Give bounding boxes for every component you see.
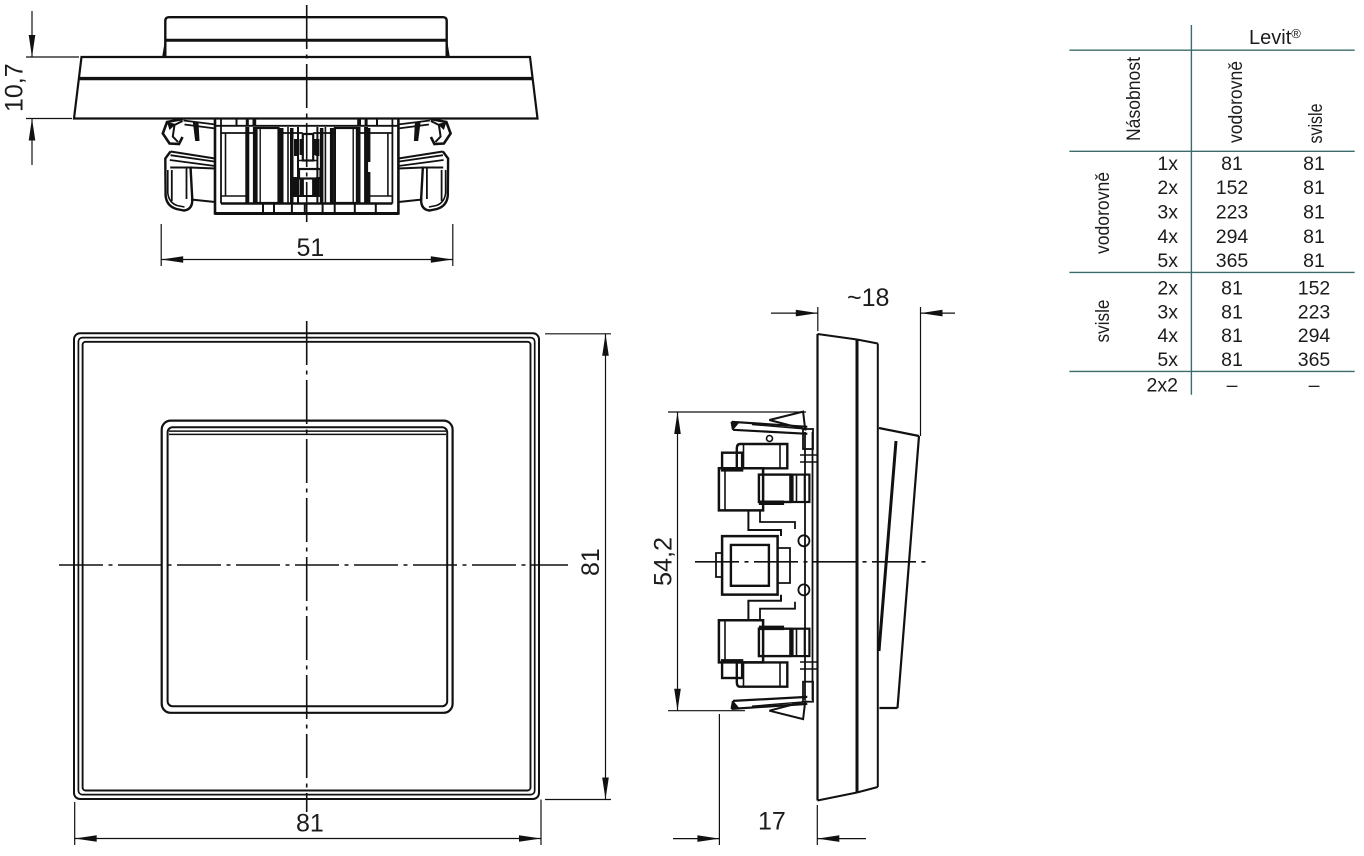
svg-text:152: 152 [1298,278,1331,300]
svg-text:54,2: 54,2 [650,537,678,586]
svg-text:–: – [1309,375,1320,397]
svg-text:5x: 5x [1157,349,1178,371]
svg-text:4x: 4x [1157,325,1178,347]
svg-text:294: 294 [1298,325,1331,347]
svg-text:2x: 2x [1157,177,1178,199]
svg-text:vodorovně: vodorovně [1225,61,1247,143]
svg-text:51: 51 [297,234,325,262]
svg-text:2x: 2x [1157,278,1178,300]
svg-text:3x: 3x [1157,202,1178,224]
svg-text:~18: ~18 [847,284,889,312]
svg-text:81: 81 [1221,153,1243,175]
svg-text:17: 17 [758,808,786,836]
svg-text:81: 81 [296,810,324,838]
svg-text:3x: 3x [1157,302,1178,324]
svg-text:81: 81 [1303,177,1325,199]
svg-text:294: 294 [1216,226,1249,248]
svg-text:svisle: svisle [1092,300,1114,343]
svg-text:–: – [1227,375,1238,397]
svg-text:Levit®: Levit® [1249,26,1301,49]
svg-text:2x2: 2x2 [1147,375,1178,397]
svg-text:81: 81 [1303,153,1325,175]
svg-text:vodorovně: vodorovně [1092,172,1114,254]
svg-text:152: 152 [1216,177,1249,199]
svg-text:10,7: 10,7 [1,63,29,112]
svg-text:4x: 4x [1157,226,1178,248]
svg-text:81: 81 [1221,325,1243,347]
svg-text:81: 81 [1221,278,1243,300]
svg-text:81: 81 [1221,302,1243,324]
svg-text:81: 81 [1303,202,1325,224]
svg-text:365: 365 [1298,349,1331,371]
svg-text:svisle: svisle [1305,104,1327,144]
svg-text:Násobnost: Násobnost [1123,56,1145,141]
svg-text:223: 223 [1298,302,1331,324]
svg-text:5x: 5x [1157,250,1178,272]
svg-text:223: 223 [1216,202,1249,224]
svg-text:81: 81 [1221,349,1243,371]
svg-text:1x: 1x [1157,153,1178,175]
svg-text:81: 81 [577,548,605,576]
svg-text:81: 81 [1303,250,1325,272]
svg-text:81: 81 [1303,226,1325,248]
svg-text:365: 365 [1216,250,1249,272]
